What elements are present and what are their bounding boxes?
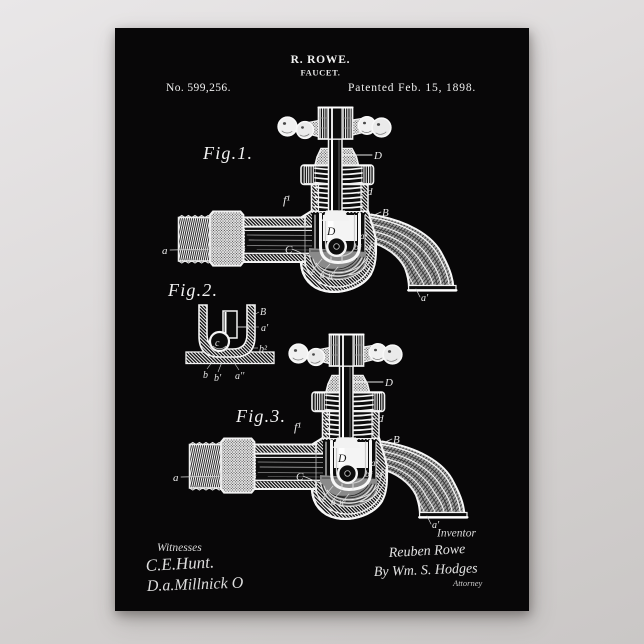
svg-text:Reuben Rowe: Reuben Rowe (387, 542, 465, 561)
svg-text:Fig.1.: Fig.1. (202, 143, 253, 163)
svg-text:Inventor: Inventor (436, 528, 476, 540)
svg-text:a'': a'' (235, 371, 245, 382)
svg-text:FAUCET.: FAUCET. (300, 68, 340, 78)
svg-text:Fig.2.: Fig.2. (167, 280, 218, 300)
svg-text:Fig.3.: Fig.3. (235, 406, 286, 426)
svg-text:b²: b² (259, 344, 268, 355)
svg-text:b: b (203, 370, 208, 381)
svg-text:Patented Feb. 15, 1898.: Patented Feb. 15, 1898. (348, 82, 476, 94)
svg-text:No. 599,256.: No. 599,256. (166, 82, 231, 94)
svg-text:Attorney: Attorney (452, 578, 482, 588)
svg-text:R. ROWE.: R. ROWE. (291, 54, 351, 66)
svg-text:C.E.Hunt.: C.E.Hunt. (145, 552, 214, 575)
svg-text:c: c (215, 338, 220, 349)
svg-text:D.a.Millnick O: D.a.Millnick O (146, 575, 244, 595)
svg-text:b': b' (214, 373, 222, 384)
svg-text:a': a' (261, 323, 269, 334)
svg-text:Witnesses: Witnesses (157, 542, 202, 554)
svg-text:B: B (260, 307, 266, 318)
